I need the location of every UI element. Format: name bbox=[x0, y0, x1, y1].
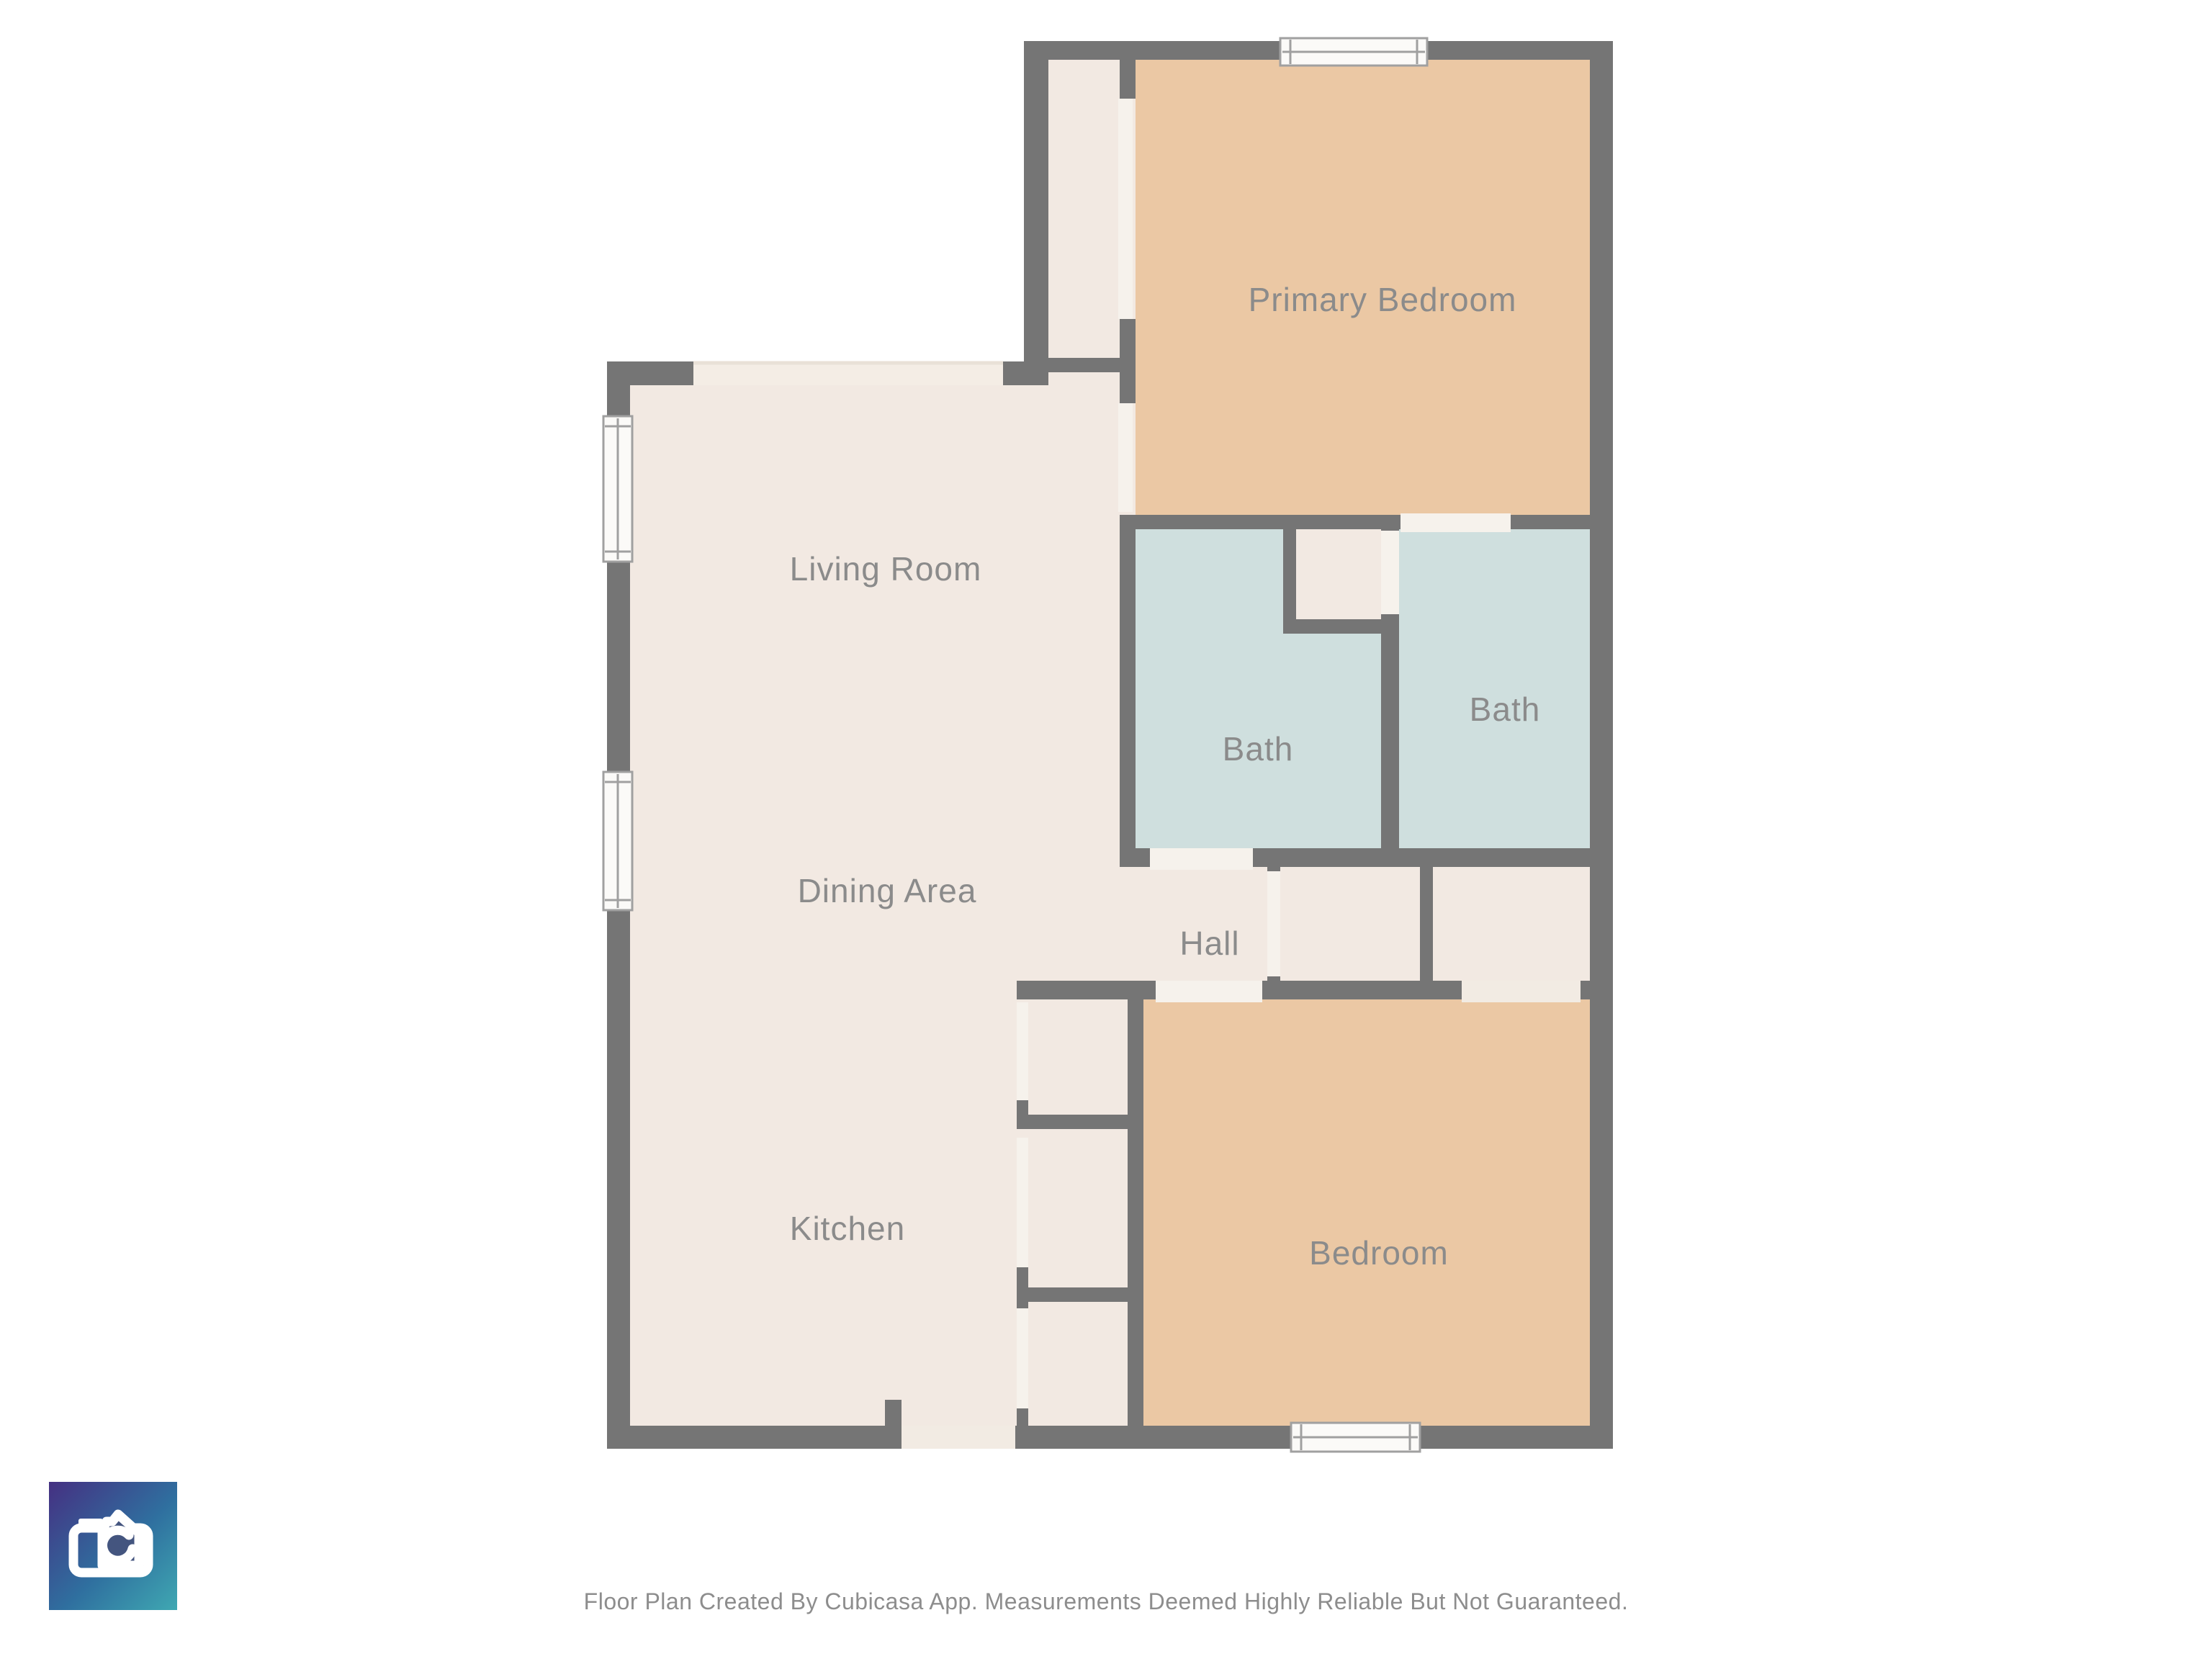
room-label-kitchen: Kitchen bbox=[790, 1209, 905, 1248]
door-opening bbox=[902, 1426, 1015, 1449]
floor-fills bbox=[630, 58, 1590, 1426]
wall bbox=[1128, 999, 1143, 1426]
floorplan-page: Primary BedroomLiving RoomBathBathDining… bbox=[0, 0, 2212, 1659]
wall bbox=[885, 1400, 902, 1427]
wall bbox=[1017, 1408, 1028, 1426]
wall bbox=[1024, 358, 1136, 372]
window-band bbox=[693, 361, 1003, 385]
wall bbox=[1420, 866, 1433, 984]
glass-wall-band bbox=[693, 361, 1003, 385]
floorplan-drawing bbox=[0, 0, 2212, 1659]
door-opening bbox=[1462, 981, 1581, 1002]
wall bbox=[1017, 1287, 1143, 1302]
wall bbox=[1024, 41, 1048, 385]
door-opening bbox=[1017, 1002, 1028, 1100]
room-label-hall: Hall bbox=[1179, 924, 1239, 963]
wall bbox=[1120, 529, 1136, 848]
wall bbox=[1120, 56, 1136, 99]
door-opening bbox=[1267, 871, 1280, 976]
door-opening bbox=[1150, 848, 1253, 870]
door-opening bbox=[1156, 981, 1262, 1002]
wall bbox=[1590, 41, 1613, 1449]
room-label-dining-area: Dining Area bbox=[798, 871, 977, 910]
door-opening bbox=[1401, 513, 1511, 532]
wall bbox=[1017, 1267, 1028, 1308]
floor-area bbox=[1143, 998, 1590, 1426]
wall bbox=[1283, 529, 1296, 619]
floor-area bbox=[1399, 529, 1590, 848]
room-label-bath-2: Bath bbox=[1470, 690, 1541, 729]
wall bbox=[1017, 1100, 1028, 1129]
wall bbox=[1017, 1115, 1143, 1129]
room-label-living-room: Living Room bbox=[790, 549, 982, 588]
door-opening bbox=[1118, 99, 1133, 319]
room-label-bedroom: Bedroom bbox=[1309, 1233, 1449, 1272]
room-label-bath-1: Bath bbox=[1223, 729, 1294, 768]
door-opening bbox=[1118, 403, 1133, 512]
floor-area bbox=[1296, 529, 1382, 619]
door-opening bbox=[1017, 1138, 1028, 1267]
wall bbox=[1120, 319, 1136, 403]
door-opening bbox=[1017, 1308, 1028, 1408]
disclaimer-text: Floor Plan Created By Cubicasa App. Meas… bbox=[0, 1588, 2212, 1615]
door-opening bbox=[1381, 531, 1399, 614]
wall bbox=[607, 1426, 1613, 1449]
wall bbox=[1120, 515, 1613, 529]
room-label-primary-bedroom: Primary Bedroom bbox=[1249, 280, 1517, 319]
